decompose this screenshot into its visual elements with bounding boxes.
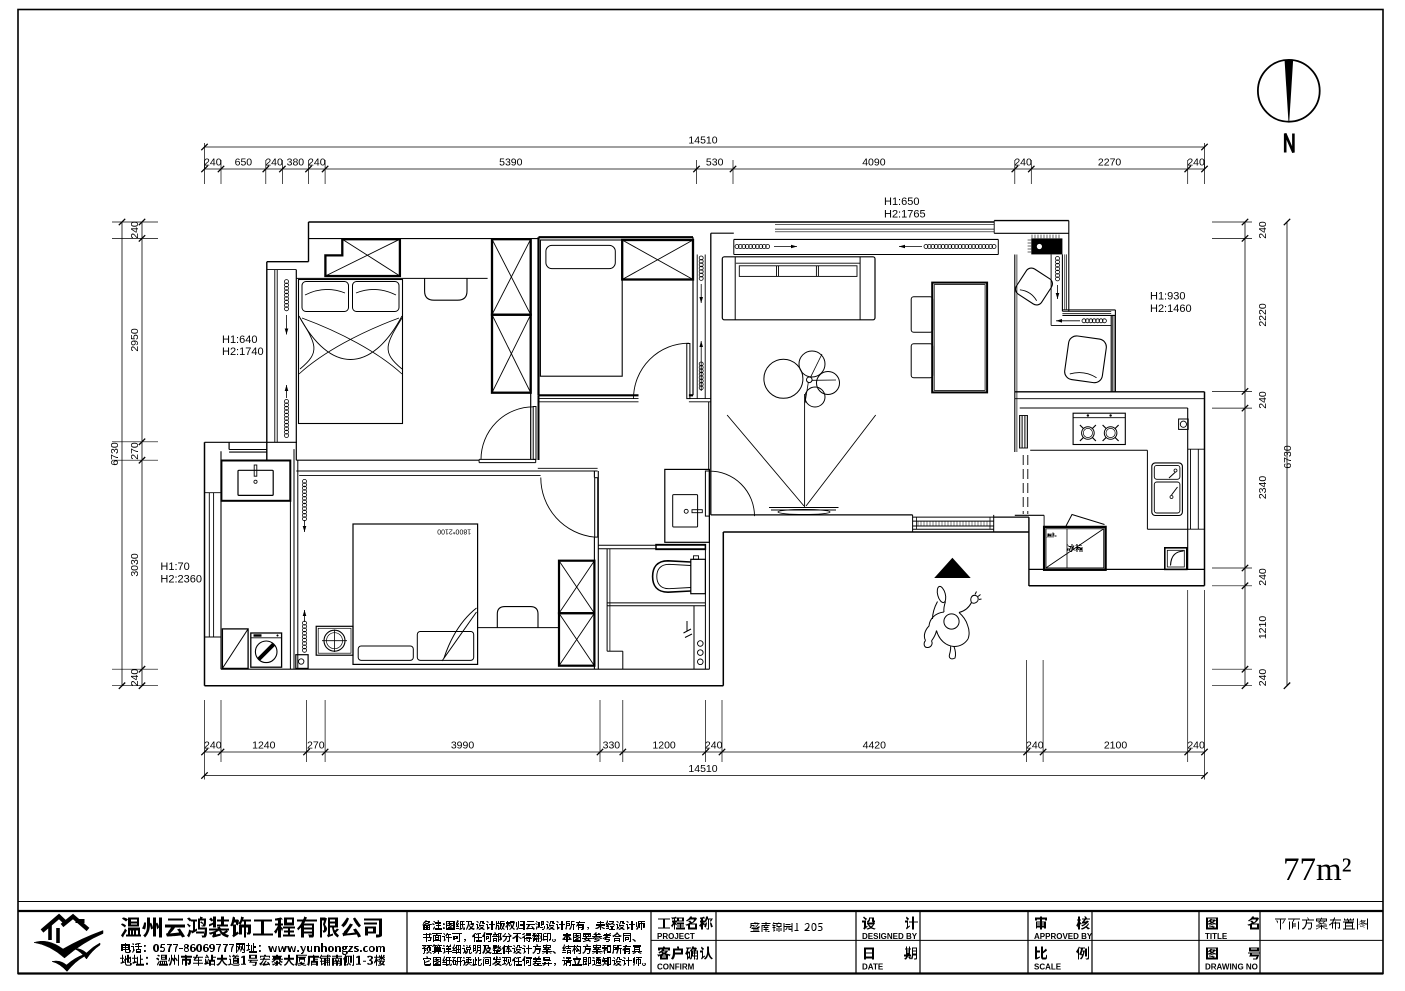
svg-text:CONFIRM: CONFIRM — [657, 963, 695, 972]
svg-text:240: 240 — [308, 157, 326, 169]
svg-text:1800*2100: 1800*2100 — [437, 528, 471, 535]
svg-text:240: 240 — [705, 740, 723, 752]
svg-text:DATE: DATE — [862, 963, 884, 972]
svg-text:6730: 6730 — [1282, 445, 1294, 469]
svg-text:2340: 2340 — [1257, 476, 1269, 500]
svg-text:DRAWING NO: DRAWING NO — [1205, 963, 1258, 972]
svg-text:530: 530 — [706, 157, 724, 169]
svg-text:650: 650 — [235, 157, 253, 169]
svg-text:240: 240 — [265, 157, 283, 169]
svg-text:4090: 4090 — [862, 157, 886, 169]
svg-text:TITLE: TITLE — [1205, 932, 1228, 941]
svg-text:240: 240 — [204, 157, 222, 169]
svg-text:H2:2360: H2:2360 — [160, 574, 202, 586]
svg-text:DESIGNED BY: DESIGNED BY — [862, 932, 918, 941]
svg-text:330: 330 — [603, 740, 621, 752]
svg-text:240: 240 — [204, 740, 222, 752]
svg-text:240: 240 — [1257, 669, 1269, 687]
svg-text:4420: 4420 — [863, 740, 887, 752]
svg-text:1240: 1240 — [252, 740, 276, 752]
svg-text:240: 240 — [1257, 568, 1269, 586]
svg-text:APPROVED BY: APPROVED BY — [1034, 932, 1093, 941]
svg-text:380: 380 — [287, 157, 305, 169]
svg-text:5390: 5390 — [499, 157, 523, 169]
svg-text:240: 240 — [1014, 157, 1032, 169]
svg-text:240: 240 — [1257, 221, 1269, 239]
svg-text:2220: 2220 — [1257, 303, 1269, 327]
svg-text:240: 240 — [129, 669, 141, 687]
svg-text:14510: 14510 — [688, 763, 717, 775]
svg-text:H1:70: H1:70 — [160, 561, 189, 573]
svg-text:H1:650: H1:650 — [884, 196, 919, 208]
svg-text:270: 270 — [129, 442, 141, 460]
svg-text:SCALE: SCALE — [1034, 963, 1062, 972]
svg-text:3990: 3990 — [451, 740, 475, 752]
svg-text:240: 240 — [1187, 157, 1205, 169]
svg-text:1200: 1200 — [652, 740, 676, 752]
svg-text:14510: 14510 — [688, 135, 717, 147]
svg-text:PROJECT: PROJECT — [657, 932, 695, 941]
svg-text:6730: 6730 — [109, 442, 121, 466]
svg-text:H1:930: H1:930 — [1150, 291, 1185, 303]
svg-text:240: 240 — [1187, 740, 1205, 752]
svg-text:H2:1765: H2:1765 — [884, 209, 926, 221]
svg-text:1210: 1210 — [1257, 616, 1269, 640]
svg-text:H2:1460: H2:1460 — [1150, 303, 1192, 315]
svg-text:240: 240 — [129, 221, 141, 239]
svg-text:3030: 3030 — [129, 553, 141, 577]
svg-text:H2:1740: H2:1740 — [222, 346, 264, 358]
svg-text:240: 240 — [1257, 391, 1269, 409]
svg-text:77m²: 77m² — [1283, 852, 1352, 888]
svg-text:270: 270 — [307, 740, 325, 752]
svg-text:240: 240 — [1026, 740, 1044, 752]
svg-text:H1:640: H1:640 — [222, 334, 257, 346]
svg-text:2950: 2950 — [129, 328, 141, 352]
svg-text:2100: 2100 — [1104, 740, 1128, 752]
svg-text:2270: 2270 — [1098, 157, 1122, 169]
